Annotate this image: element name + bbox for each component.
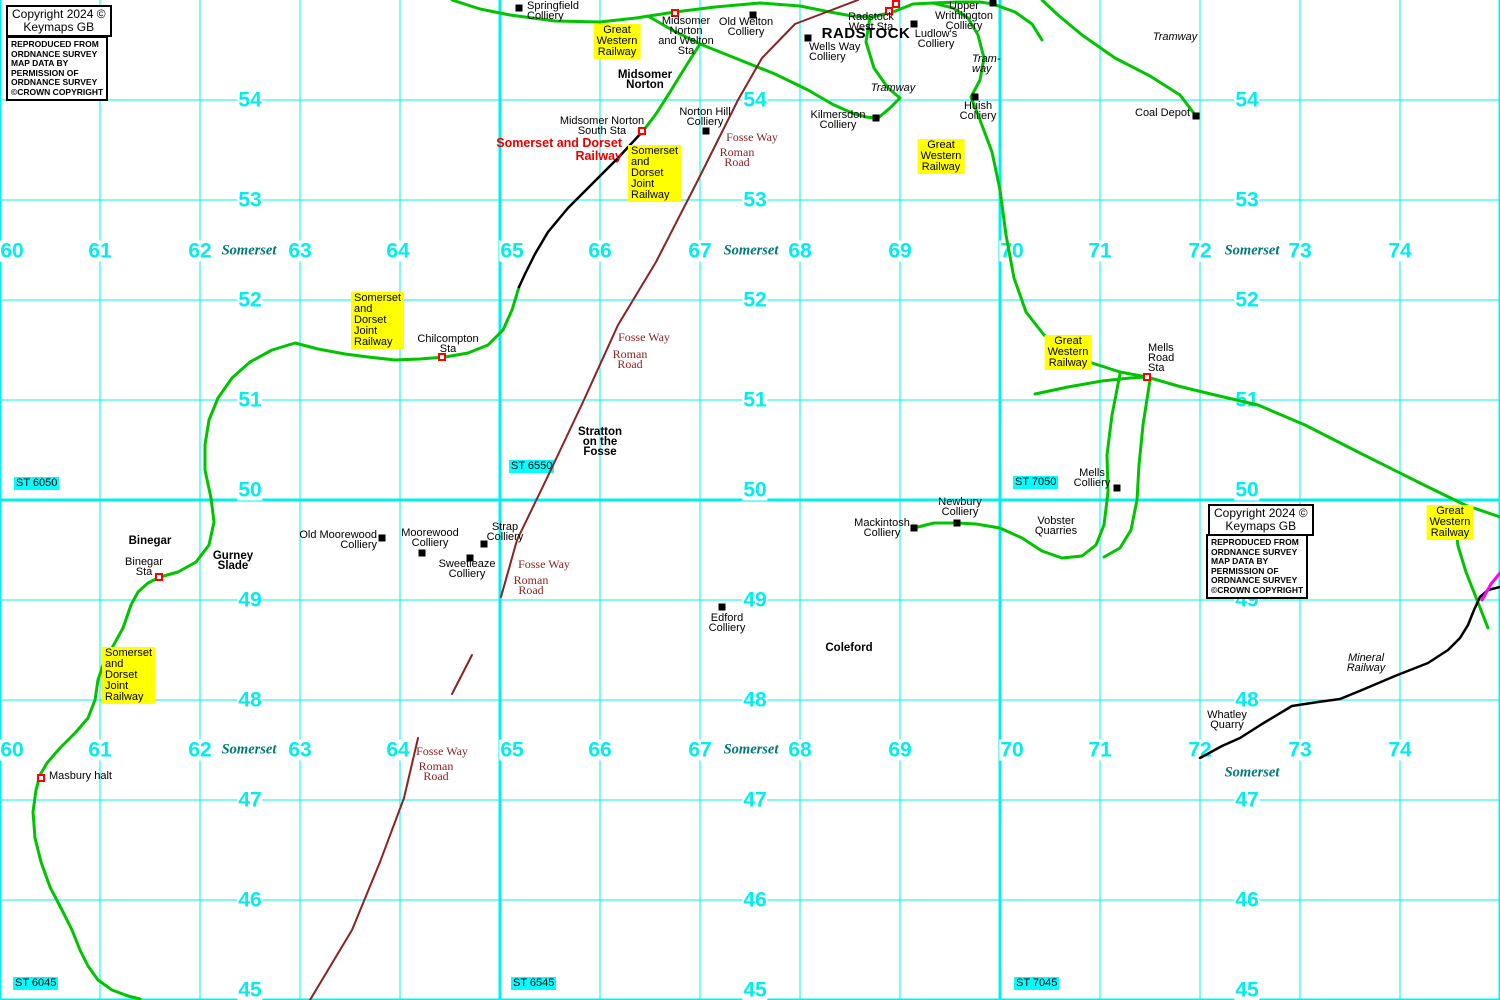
copyright-attribution-box: REPRODUCED FROMORDNANCE SURVEYMAP DATA B… [6, 36, 108, 101]
label-line: Masbury halt [49, 771, 112, 781]
county-label-somerset: Somerset [222, 742, 277, 759]
coleford-town-label: Coleford [825, 643, 872, 653]
label-line: Colliery [487, 532, 524, 542]
copyright-title-box: Copyright 2024 ©Keymaps GB [1208, 504, 1314, 536]
gurney-slade-town-label: GurneySlade [213, 551, 253, 571]
label-line: Colliery [854, 528, 910, 538]
old-welton-colliery-label: Old WeltonColliery [719, 17, 773, 37]
label-line: Quarries [1035, 526, 1077, 536]
somerset-dorset-railway-red-label: Somerset and DorsetRailway [496, 137, 622, 163]
label-line: Colliery [809, 52, 860, 62]
label-line: Fosse [578, 447, 622, 457]
label-line: Slade [213, 561, 253, 571]
county-label-somerset: Somerset [724, 243, 779, 260]
label-line: South Sta [560, 126, 644, 136]
copyright-title-line: Keymaps GB [12, 21, 106, 34]
label-line: Sta [125, 567, 163, 577]
label-line: Railway [496, 150, 622, 163]
norton-hill-colliery-label: Norton HillColliery [679, 107, 730, 127]
fosse-way-3b-label: RomanRoad [514, 576, 549, 595]
label-line: Quarry [1207, 720, 1247, 730]
label-line: Railway [597, 47, 638, 58]
label-line: Tramway [1153, 32, 1197, 42]
moorewood-colliery-label: MoorewoodColliery [401, 528, 458, 548]
midsomer-norton-welton-sta-label: MidsomerNortonand WeltonSta [658, 16, 713, 56]
label-line: Fosse Way [416, 747, 468, 757]
stratton-on-the-fosse-label: Strattonon theFosse [578, 427, 622, 457]
mells-road-sta-label: MellsRoadSta [1148, 343, 1174, 373]
coal-depot-label: Coal Depot [1135, 108, 1190, 118]
gwr-box-east-label: GreatWesternRailway [1427, 505, 1474, 540]
label-line: Railway [631, 190, 678, 201]
masbury-halt-label: Masbury halt [49, 771, 112, 781]
county-label-somerset: Somerset [1225, 765, 1280, 782]
copyright-attribution-line: ©CROWN COPYRIGHT [1211, 586, 1303, 596]
label-line: Colliery [679, 117, 730, 127]
fosse-way-3a-label: Fosse Way [518, 560, 570, 570]
mells-colliery-label: MellsColliery [1074, 468, 1111, 488]
label-line: Sta [1148, 363, 1174, 373]
label-line: Norton [618, 80, 672, 90]
labels-layer: SomersetSomersetSomersetSomersetSomerset… [0, 0, 1500, 1000]
copyright-title-line: Keymaps GB [1214, 520, 1308, 533]
fosse-way-4b-label: RomanRoad [419, 762, 454, 781]
label-line: Fosse Way [726, 133, 778, 143]
huish-colliery-label: HuishColliery [960, 101, 997, 121]
edford-colliery-label: EdfordColliery [709, 613, 746, 633]
label-line: Railway [1347, 663, 1386, 673]
fosse-way-2a-label: Fosse Way [618, 333, 670, 343]
gwr-box-top-label: GreatWesternRailway [594, 24, 641, 59]
sdjr-box-chilcompton-label: SomersetandDorsetJointRailway [351, 292, 404, 349]
label-line: Road [514, 586, 549, 596]
label-line: Coleford [825, 643, 872, 653]
sdjr-box-masbury-label: SomersetandDorsetJointRailway [102, 647, 155, 704]
label-line: Road [419, 772, 454, 782]
label-line: Railway [354, 337, 401, 348]
county-label-somerset: Somerset [1225, 243, 1280, 260]
label-line: Tramway [871, 83, 915, 93]
label-line: Road [613, 360, 648, 370]
label-line: Colliery [960, 111, 997, 121]
sdjr-box-midsomer-label: SomersetandDorsetJointRailway [628, 145, 681, 202]
label-line: Sta [417, 344, 478, 354]
label-line: way [972, 64, 1001, 74]
copyright-attribution-line: ©CROWN COPYRIGHT [11, 88, 103, 98]
old-moorewood-colliery-label: Old MoorewoodColliery [299, 530, 377, 550]
tramway-label-2-label: Tramway [871, 83, 915, 93]
label-line: Coal Depot [1135, 108, 1190, 118]
label-line: Road [720, 158, 755, 168]
fosse-way-2b-label: RomanRoad [613, 350, 648, 369]
tramway-label-1-label: Tram-way [972, 54, 1001, 74]
vobster-quarries-label: VobsterQuarries [1035, 516, 1077, 536]
strap-colliery-label: StrapColliery [487, 522, 524, 542]
label-line: Fosse Way [518, 560, 570, 570]
label-line: Railway [1048, 358, 1089, 369]
wells-way-colliery-label: Wells WayColliery [809, 42, 860, 62]
label-line: Sta [658, 46, 713, 56]
midsomer-norton-town-label: MidsomerNorton [618, 70, 672, 90]
gwr-box-mells-label: GreatWesternRailway [1045, 335, 1092, 370]
label-line: Colliery [1074, 478, 1111, 488]
upper-writhlington-colliery-label: UpperWrithlingtonColliery [935, 1, 993, 31]
fosse-way-4a-label: Fosse Way [416, 747, 468, 757]
label-line: Binegar [129, 536, 172, 546]
label-line: Colliery [915, 39, 957, 49]
mineral-railway-label: MineralRailway [1347, 653, 1386, 673]
label-line: Railway [921, 162, 962, 173]
label-line: Railway [105, 692, 152, 703]
binegar-sta-label: BinegarSta [125, 557, 163, 577]
label-line: Colliery [709, 623, 746, 633]
whatley-quarry-label: WhatleyQuarry [1207, 710, 1247, 730]
label-line: Colliery [938, 507, 981, 517]
fosse-way-1b-label: RomanRoad [720, 148, 755, 167]
label-line: Colliery [719, 27, 773, 37]
tramway-label-3-label: Tramway [1153, 32, 1197, 42]
copyright-title-box: Copyright 2024 ©Keymaps GB [6, 5, 112, 37]
county-label-somerset: Somerset [222, 243, 277, 260]
fosse-way-1a-label: Fosse Way [726, 133, 778, 143]
railway-map-canvas: 6061626364656667686970717273746061626364… [0, 0, 1500, 1000]
label-line: RADSTOCK [822, 29, 911, 39]
label-line: Colliery [401, 538, 458, 548]
gwr-box-kilmersdon-label: GreatWesternRailway [918, 139, 965, 174]
newbury-colliery-label: NewburyColliery [938, 497, 981, 517]
binegar-town-label: Binegar [129, 536, 172, 546]
county-label-somerset: Somerset [724, 742, 779, 759]
copyright-attribution-box: REPRODUCED FROMORDNANCE SURVEYMAP DATA B… [1206, 534, 1308, 599]
label-line: Colliery [439, 569, 496, 579]
mackintosh-colliery-label: MackintoshColliery [854, 518, 910, 538]
label-line: Colliery [810, 120, 865, 130]
chilcompton-sta-label: ChilcomptonSta [417, 334, 478, 354]
springfield-colliery-label: SpringfieldColliery [527, 1, 579, 21]
sweetleaze-colliery-label: SweetleazeColliery [439, 559, 496, 579]
label-line: Fosse Way [618, 333, 670, 343]
label-line: Colliery [527, 11, 579, 21]
midsomer-norton-south-sta-label: Midsomer NortonSouth Sta [560, 116, 644, 136]
kilmersdon-colliery-label: KilmersdonColliery [810, 110, 865, 130]
label-line: Railway [1430, 528, 1471, 539]
ludlows-colliery-label: Ludlow'sColliery [915, 29, 957, 49]
label-line: Colliery [299, 540, 377, 550]
radstock-town-label: RADSTOCK [822, 29, 911, 39]
